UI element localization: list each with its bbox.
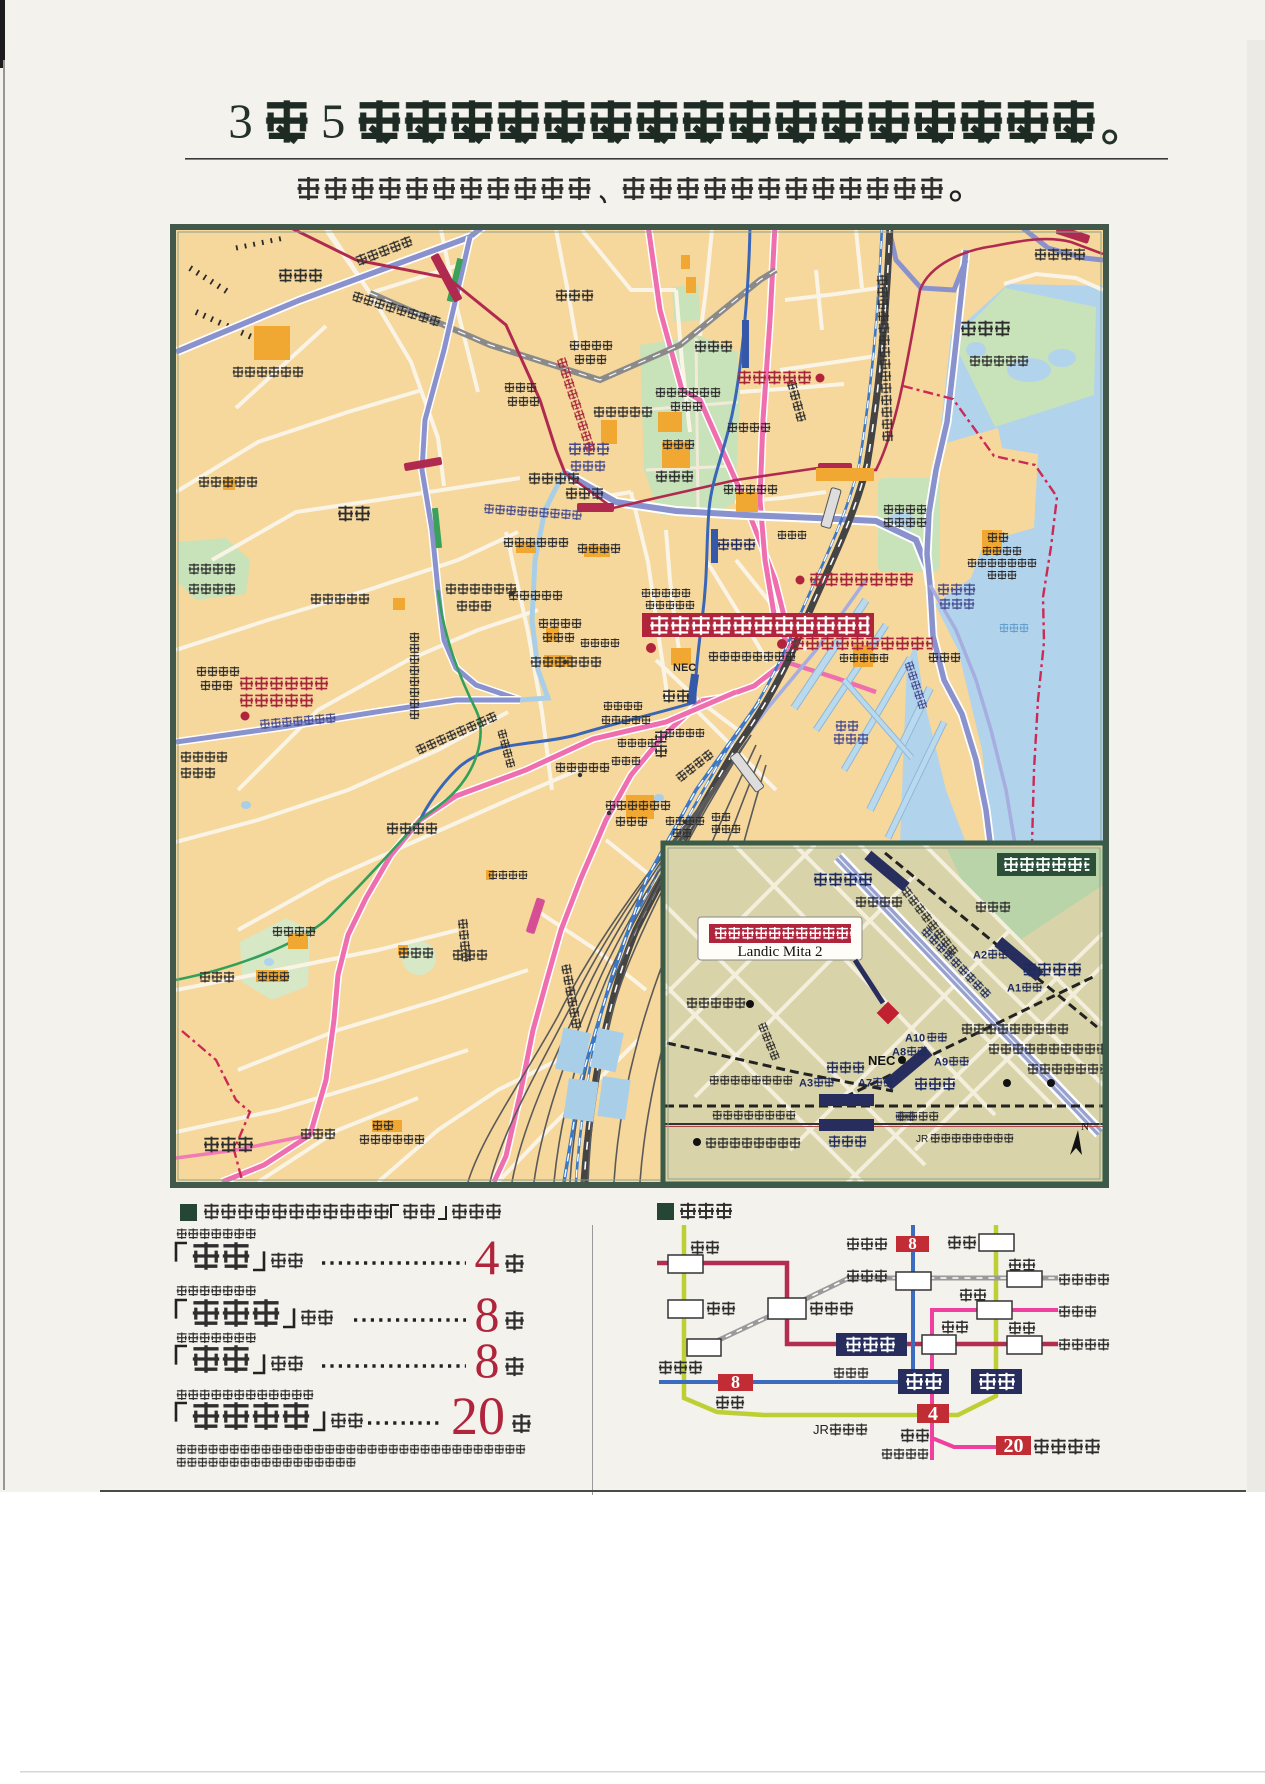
svg-text:JR: JR — [916, 1134, 928, 1145]
svg-text:NEC: NEC — [868, 1053, 896, 1068]
svg-text:8: 8 — [475, 1332, 500, 1388]
svg-text:A9: A9 — [934, 1057, 948, 1069]
svg-text:A2: A2 — [973, 950, 987, 962]
svg-text:A7: A7 — [858, 1078, 872, 1090]
svg-text:20: 20 — [451, 1386, 505, 1446]
svg-text:Landic Mita 2: Landic Mita 2 — [738, 944, 823, 960]
svg-text:4: 4 — [928, 1403, 938, 1425]
svg-text:A10: A10 — [905, 1033, 925, 1045]
svg-text:20: 20 — [1004, 1435, 1024, 1457]
svg-text:4: 4 — [475, 1229, 500, 1285]
svg-text:N: N — [1081, 1121, 1089, 1133]
svg-text:JR: JR — [813, 1422, 829, 1437]
svg-text:5: 5 — [321, 94, 346, 149]
svg-text:A1: A1 — [1007, 983, 1021, 995]
svg-text:NEC: NEC — [673, 662, 696, 674]
svg-text:8: 8 — [908, 1234, 917, 1253]
svg-text:8: 8 — [731, 1372, 740, 1392]
svg-text:A3: A3 — [799, 1078, 813, 1090]
svg-text:3: 3 — [228, 94, 253, 149]
